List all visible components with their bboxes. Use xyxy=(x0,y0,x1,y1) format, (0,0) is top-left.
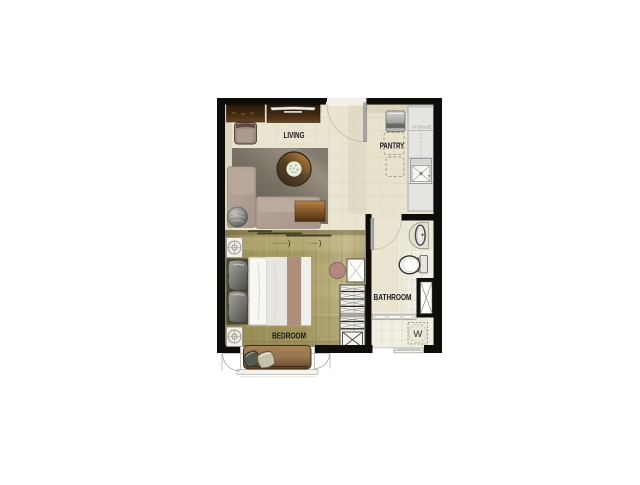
svg-text:LIVING: LIVING xyxy=(284,131,305,140)
svg-text:BATHROOM: BATHROOM xyxy=(374,293,412,302)
svg-text:): ) xyxy=(288,241,290,248)
svg-text:BEDROOM: BEDROOM xyxy=(272,332,306,341)
svg-text:STORAGE: STORAGE xyxy=(412,125,432,130)
svg-text:PANTRY: PANTRY xyxy=(380,142,405,151)
svg-text:W: W xyxy=(413,329,422,340)
svg-text:): ) xyxy=(319,241,321,248)
